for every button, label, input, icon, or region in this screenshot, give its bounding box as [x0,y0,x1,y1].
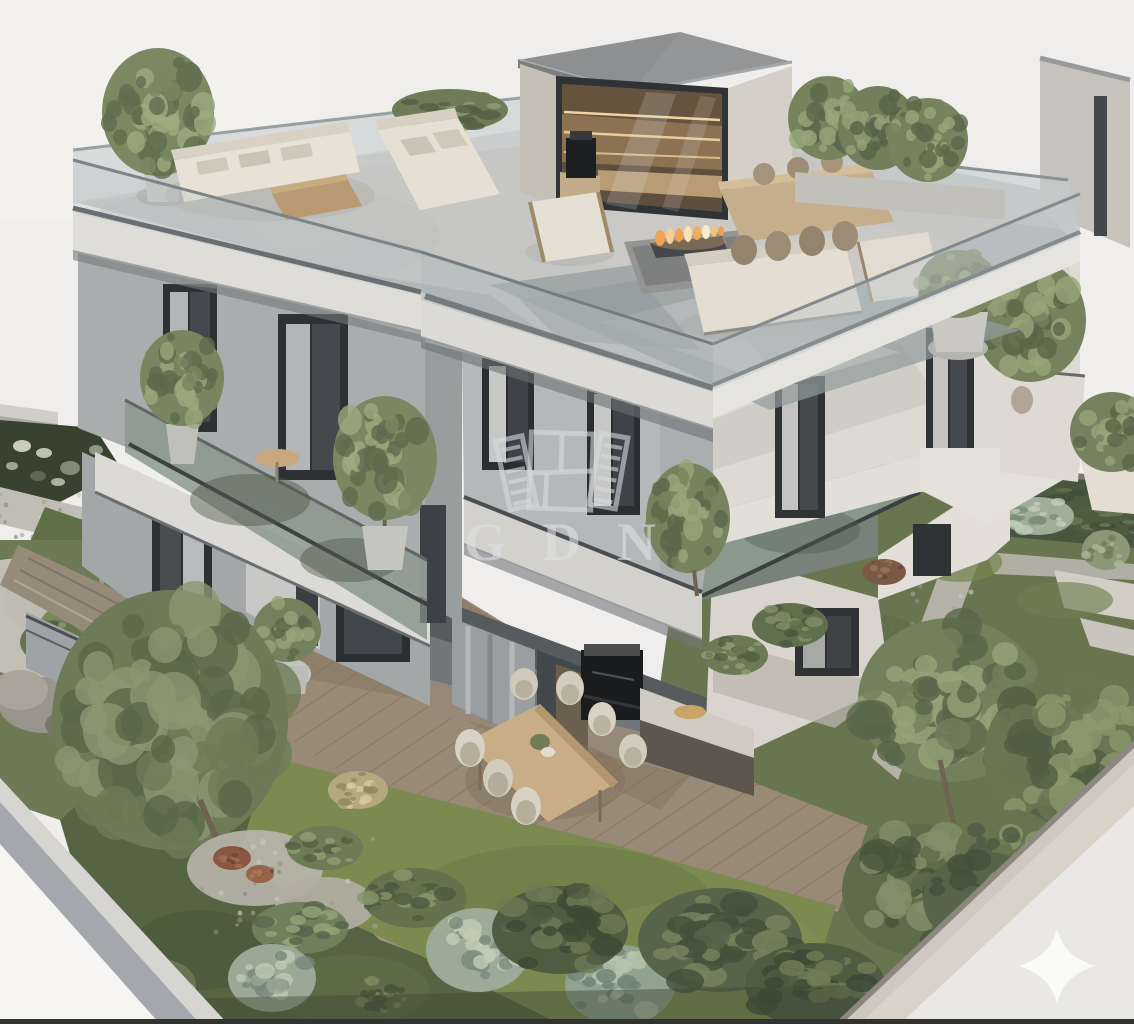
svg-text:GDN: GDN [464,512,692,572]
